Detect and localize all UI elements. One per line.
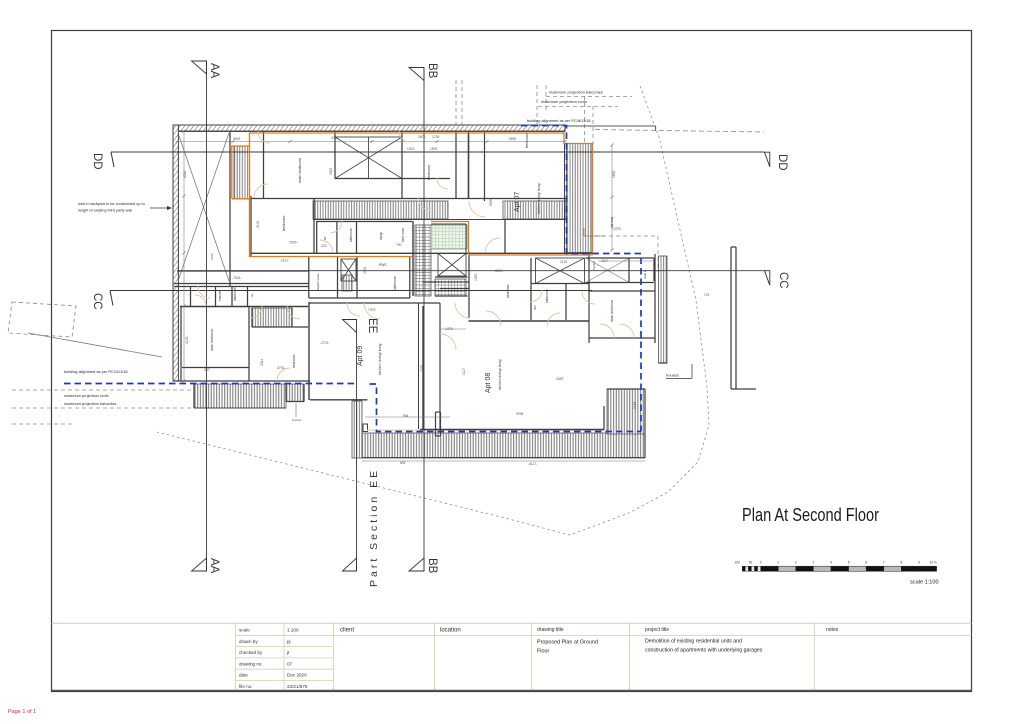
svg-text:2165: 2165 (633, 401, 637, 409)
svg-text:main bedroom: main bedroom (210, 329, 214, 351)
svg-text:2652: 2652 (329, 167, 333, 175)
svg-text:construction of apartments wit: construction of apartments with underlyi… (645, 648, 763, 654)
svg-text:BB: BB (426, 63, 438, 79)
svg-text:790: 790 (396, 243, 402, 247)
svg-text:7: 7 (883, 561, 885, 565)
svg-text:8: 8 (901, 561, 903, 565)
svg-text:-1475-: -1475- (612, 227, 622, 231)
svg-text:Apt 08: Apt 08 (485, 373, 492, 393)
svg-text:2119: 2119 (560, 260, 567, 264)
svg-text:bathroom: bathroom (233, 287, 237, 301)
svg-text:maximum projection balconies: maximum projection balconies (64, 401, 116, 406)
svg-text:350: 350 (533, 305, 537, 310)
svg-text:1738: 1738 (432, 135, 440, 139)
svg-text:project title: project title (645, 627, 669, 633)
svg-text:maximum projection roofs: maximum projection roofs (64, 393, 109, 398)
svg-text:4130: 4130 (185, 336, 189, 344)
svg-text:main bedroom: main bedroom (297, 158, 302, 183)
svg-text:CC: CC (777, 272, 789, 289)
svg-text:pj: pj (287, 639, 291, 644)
svg-text:721: 721 (704, 293, 710, 297)
svg-text:CC: CC (91, 293, 103, 310)
svg-text:1023: 1023 (407, 147, 415, 151)
svg-text:50: 50 (749, 561, 753, 565)
svg-text:3670: 3670 (418, 135, 426, 139)
svg-text:bathroom: bathroom (393, 276, 397, 290)
svg-text:PWC: PWC (379, 263, 387, 267)
svg-text:-3751-: -3751- (276, 366, 286, 370)
svg-text:drawing no.: drawing no. (239, 661, 263, 666)
svg-text:bathroom: bathroom (545, 289, 549, 303)
svg-text:2541: 2541 (260, 358, 264, 366)
svg-text:date: date (239, 673, 248, 678)
svg-text:AA: AA (208, 63, 220, 79)
svg-text:2652: 2652 (612, 170, 616, 178)
svg-text:-2721-: -2721- (320, 341, 330, 345)
svg-text:3: 3 (813, 561, 815, 565)
svg-text:bedsit/ store: bedsit/ store (316, 273, 320, 290)
svg-text:walk in: walk in (643, 269, 647, 279)
svg-text:bedroom: bedroom (426, 165, 431, 180)
svg-text:building alignment as per PC/8: building alignment as per PC/8/11/18 (527, 118, 591, 123)
svg-text:file no.: file no. (239, 684, 253, 689)
svg-text:study: study (379, 232, 383, 240)
svg-text:height of existing third party: height of existing third party wall (78, 209, 132, 213)
svg-text:1:100: 1:100 (287, 628, 299, 633)
svg-text:kitchen/ dining/ living: kitchen/ dining/ living (498, 359, 502, 390)
svg-text:-6117-: -6117- (528, 462, 537, 466)
svg-text:4117: 4117 (462, 368, 466, 375)
svg-text:DD: DD (776, 154, 788, 171)
svg-text:BB: BB (426, 558, 438, 574)
svg-text:bedroom: bedroom (506, 284, 510, 298)
svg-text:0: 0 (760, 561, 762, 565)
svg-text:bedroom: bedroom (524, 133, 529, 148)
svg-text:Part Section EE: Part Section EE (368, 468, 380, 587)
svg-text:-7605-: -7605- (288, 241, 298, 245)
svg-text:223: 223 (321, 244, 327, 248)
svg-text:9: 9 (918, 561, 920, 565)
svg-text:kitchen/ dining/ living: kitchen/ dining/ living (537, 183, 541, 214)
svg-text:07: 07 (287, 661, 293, 666)
svg-text:Dec 2020: Dec 2020 (287, 673, 307, 678)
svg-text:bathroom: bathroom (349, 228, 353, 242)
svg-text:6246: 6246 (183, 170, 187, 178)
svg-text:9298: 9298 (516, 412, 524, 416)
svg-text:Plan At Second Floor: Plan At Second Floor (742, 505, 879, 525)
svg-text:100: 100 (734, 561, 740, 565)
svg-text:10 m: 10 m (929, 561, 936, 565)
svg-text:houses: houses (666, 373, 679, 378)
svg-text:main bedroom: main bedroom (610, 300, 614, 322)
svg-text:1: 1 (777, 561, 779, 565)
svg-text:scale: scale (239, 628, 250, 633)
svg-text:location: location (440, 628, 461, 634)
svg-text:3554: 3554 (363, 266, 367, 274)
svg-text:Demolition of existing residen: Demolition of existing residential units… (645, 639, 742, 645)
svg-text:5692: 5692 (509, 137, 517, 141)
svg-text:-7004-: -7004- (232, 276, 242, 280)
svg-text:client: client (340, 628, 354, 634)
svg-text:cupb'd: cupb'd (592, 261, 596, 270)
svg-text:building alignment as per PC/1: building alignment as per PC/11/1/18 (64, 369, 128, 374)
svg-text:-2111-: -2111- (280, 259, 289, 263)
svg-text:EE: EE (366, 318, 378, 334)
svg-text:bracket: bracket (292, 418, 301, 422)
svg-text:kitchen / dining/ living: kitchen / dining/ living (378, 343, 382, 375)
svg-text:drawn by: drawn by (239, 639, 258, 644)
svg-text:5: 5 (848, 561, 850, 565)
svg-text:1520: 1520 (474, 273, 478, 281)
svg-text:ensuite: ensuite (218, 290, 222, 301)
svg-text:wc: wc (323, 236, 327, 240)
svg-text:-3307-: -3307- (494, 269, 504, 273)
svg-text:checked by: checked by (239, 650, 263, 655)
svg-text:DD: DD (91, 153, 103, 170)
svg-text:-387-: -387- (203, 368, 211, 372)
svg-text:4329: 4329 (556, 377, 564, 381)
svg-text:wc: wc (250, 293, 254, 297)
svg-text:23/21/875: 23/21/875 (287, 684, 308, 689)
svg-text:4701: 4701 (331, 136, 339, 140)
svg-text:1825: 1825 (210, 253, 214, 260)
svg-text:drawing title: drawing title (537, 627, 564, 633)
svg-text:1117: 1117 (601, 259, 608, 263)
svg-text:maximum projection roofs: maximum projection roofs (541, 99, 587, 104)
svg-text:maximum projection balconies: maximum projection balconies (549, 90, 603, 95)
svg-text:6: 6 (865, 561, 867, 565)
svg-text:scale 1:100: scale 1:100 (910, 580, 939, 586)
svg-text:7379: 7379 (368, 308, 376, 312)
svg-text:Apt 09: Apt 09 (357, 346, 364, 366)
svg-text:AA: AA (208, 558, 220, 574)
svg-text:9903: 9903 (233, 137, 241, 141)
svg-text:bsm room: bsm room (401, 227, 405, 242)
svg-text:892: 892 (400, 461, 406, 465)
svg-text:4: 4 (830, 561, 832, 565)
svg-text:964: 964 (403, 414, 409, 418)
svg-text:7355: 7355 (420, 364, 424, 372)
svg-text:2: 2 (795, 561, 797, 565)
svg-text:Page 1 of 1: Page 1 of 1 (8, 709, 36, 715)
svg-text:6590: 6590 (489, 198, 493, 206)
svg-text:2115: 2115 (256, 221, 260, 228)
svg-text:1503: 1503 (430, 147, 438, 151)
svg-text:Floor: Floor (537, 649, 549, 655)
svg-text:notes: notes (826, 627, 839, 633)
svg-text:bedroom: bedroom (281, 216, 286, 231)
svg-text:Apt 07: Apt 07 (514, 192, 521, 212)
svg-text:bedroom: bedroom (292, 354, 296, 368)
svg-text:-1475-: -1475- (444, 327, 454, 331)
svg-text:wall in backyard to be constru: wall in backyard to be constructed up to (78, 202, 145, 206)
svg-text:Proposed Plan at Ground: Proposed Plan at Ground (537, 640, 598, 646)
